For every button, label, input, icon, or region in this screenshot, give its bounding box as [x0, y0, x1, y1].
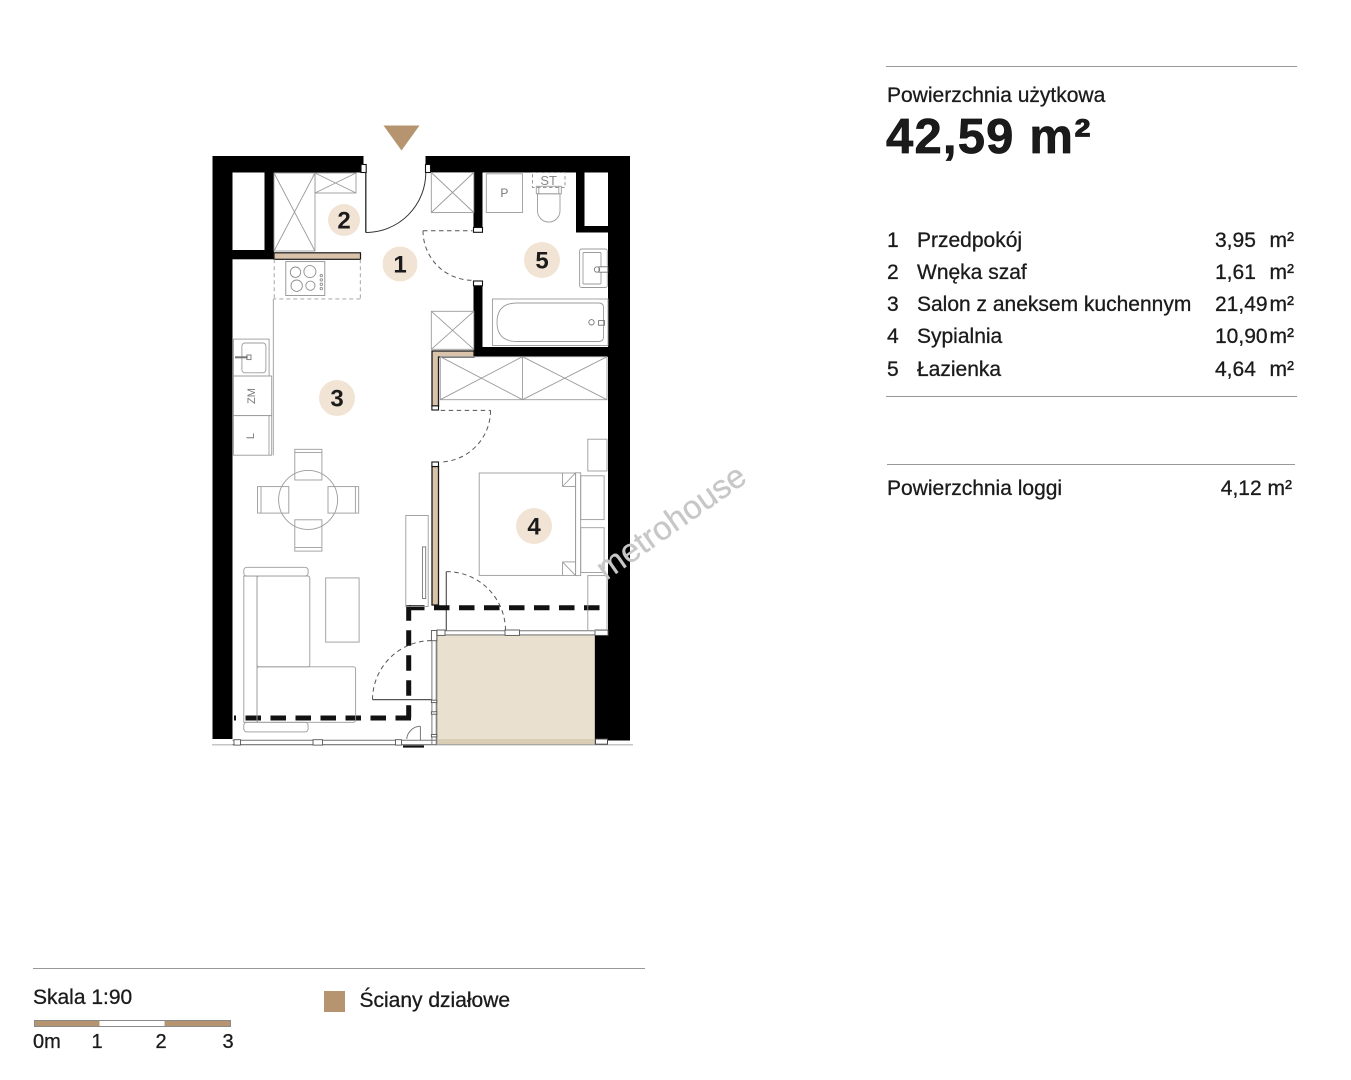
svg-text:5: 5 — [535, 248, 548, 275]
svg-text:ST: ST — [540, 173, 557, 188]
svg-text:3: 3 — [330, 386, 343, 413]
svg-text:1: 1 — [393, 252, 406, 279]
svg-text:2: 2 — [337, 208, 350, 235]
svg-text:4: 4 — [527, 514, 541, 541]
svg-text:ZM: ZM — [246, 388, 258, 404]
svg-text:L: L — [245, 433, 257, 439]
svg-text:P: P — [500, 186, 508, 200]
